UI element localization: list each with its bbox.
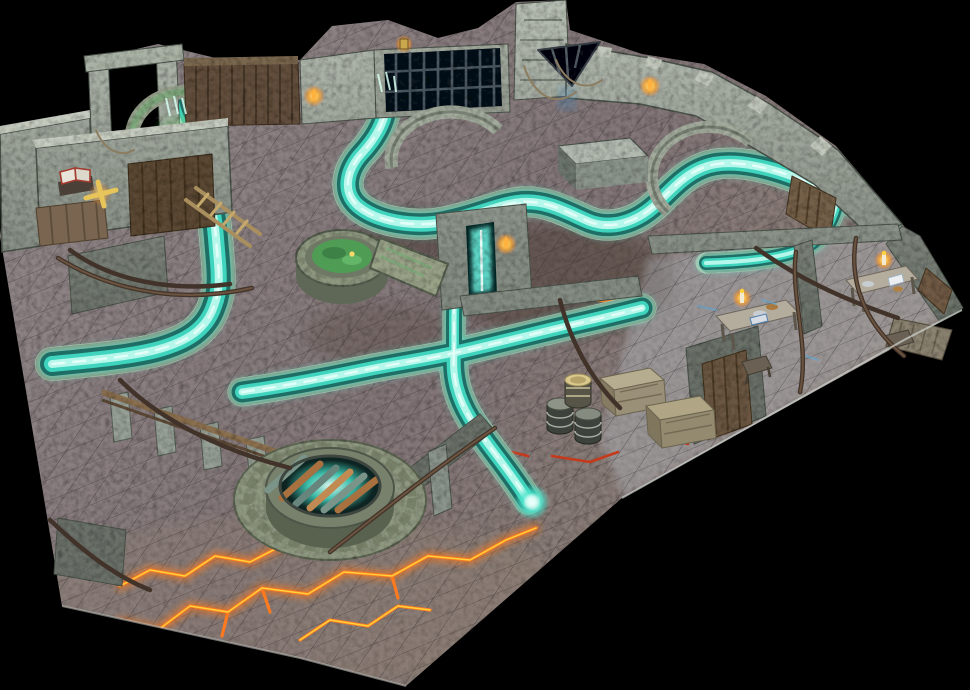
stone-altar bbox=[558, 138, 648, 190]
candle bbox=[882, 254, 886, 265]
wall-lantern bbox=[395, 35, 413, 53]
palisade-fence bbox=[184, 56, 300, 126]
dungeon-board-scene bbox=[0, 0, 970, 690]
barrel-tan bbox=[565, 374, 591, 408]
candle-flame bbox=[740, 289, 744, 293]
crate bbox=[646, 396, 716, 448]
barrel-dark bbox=[575, 408, 601, 444]
lantern-body bbox=[400, 39, 408, 49]
gold-glint bbox=[349, 251, 354, 256]
wall-torch bbox=[495, 233, 517, 255]
portcullis-dark bbox=[384, 48, 502, 112]
barrel-top bbox=[575, 408, 601, 420]
pool-blotch bbox=[322, 247, 346, 259]
wall-torch bbox=[639, 75, 661, 97]
wall-torch bbox=[303, 85, 325, 107]
terrain-photo bbox=[0, 0, 970, 690]
book-right-page bbox=[75, 168, 90, 182]
candle-flame bbox=[882, 251, 886, 255]
bowl bbox=[893, 286, 903, 291]
river-exit-bright bbox=[525, 495, 539, 509]
crenellation bbox=[596, 46, 612, 58]
trapdoor bbox=[36, 200, 108, 246]
plate bbox=[862, 281, 874, 287]
barrel-top-inner bbox=[570, 376, 586, 383]
candle bbox=[740, 292, 744, 303]
portal-bright-core bbox=[481, 230, 482, 291]
palisade-planks bbox=[184, 62, 300, 126]
